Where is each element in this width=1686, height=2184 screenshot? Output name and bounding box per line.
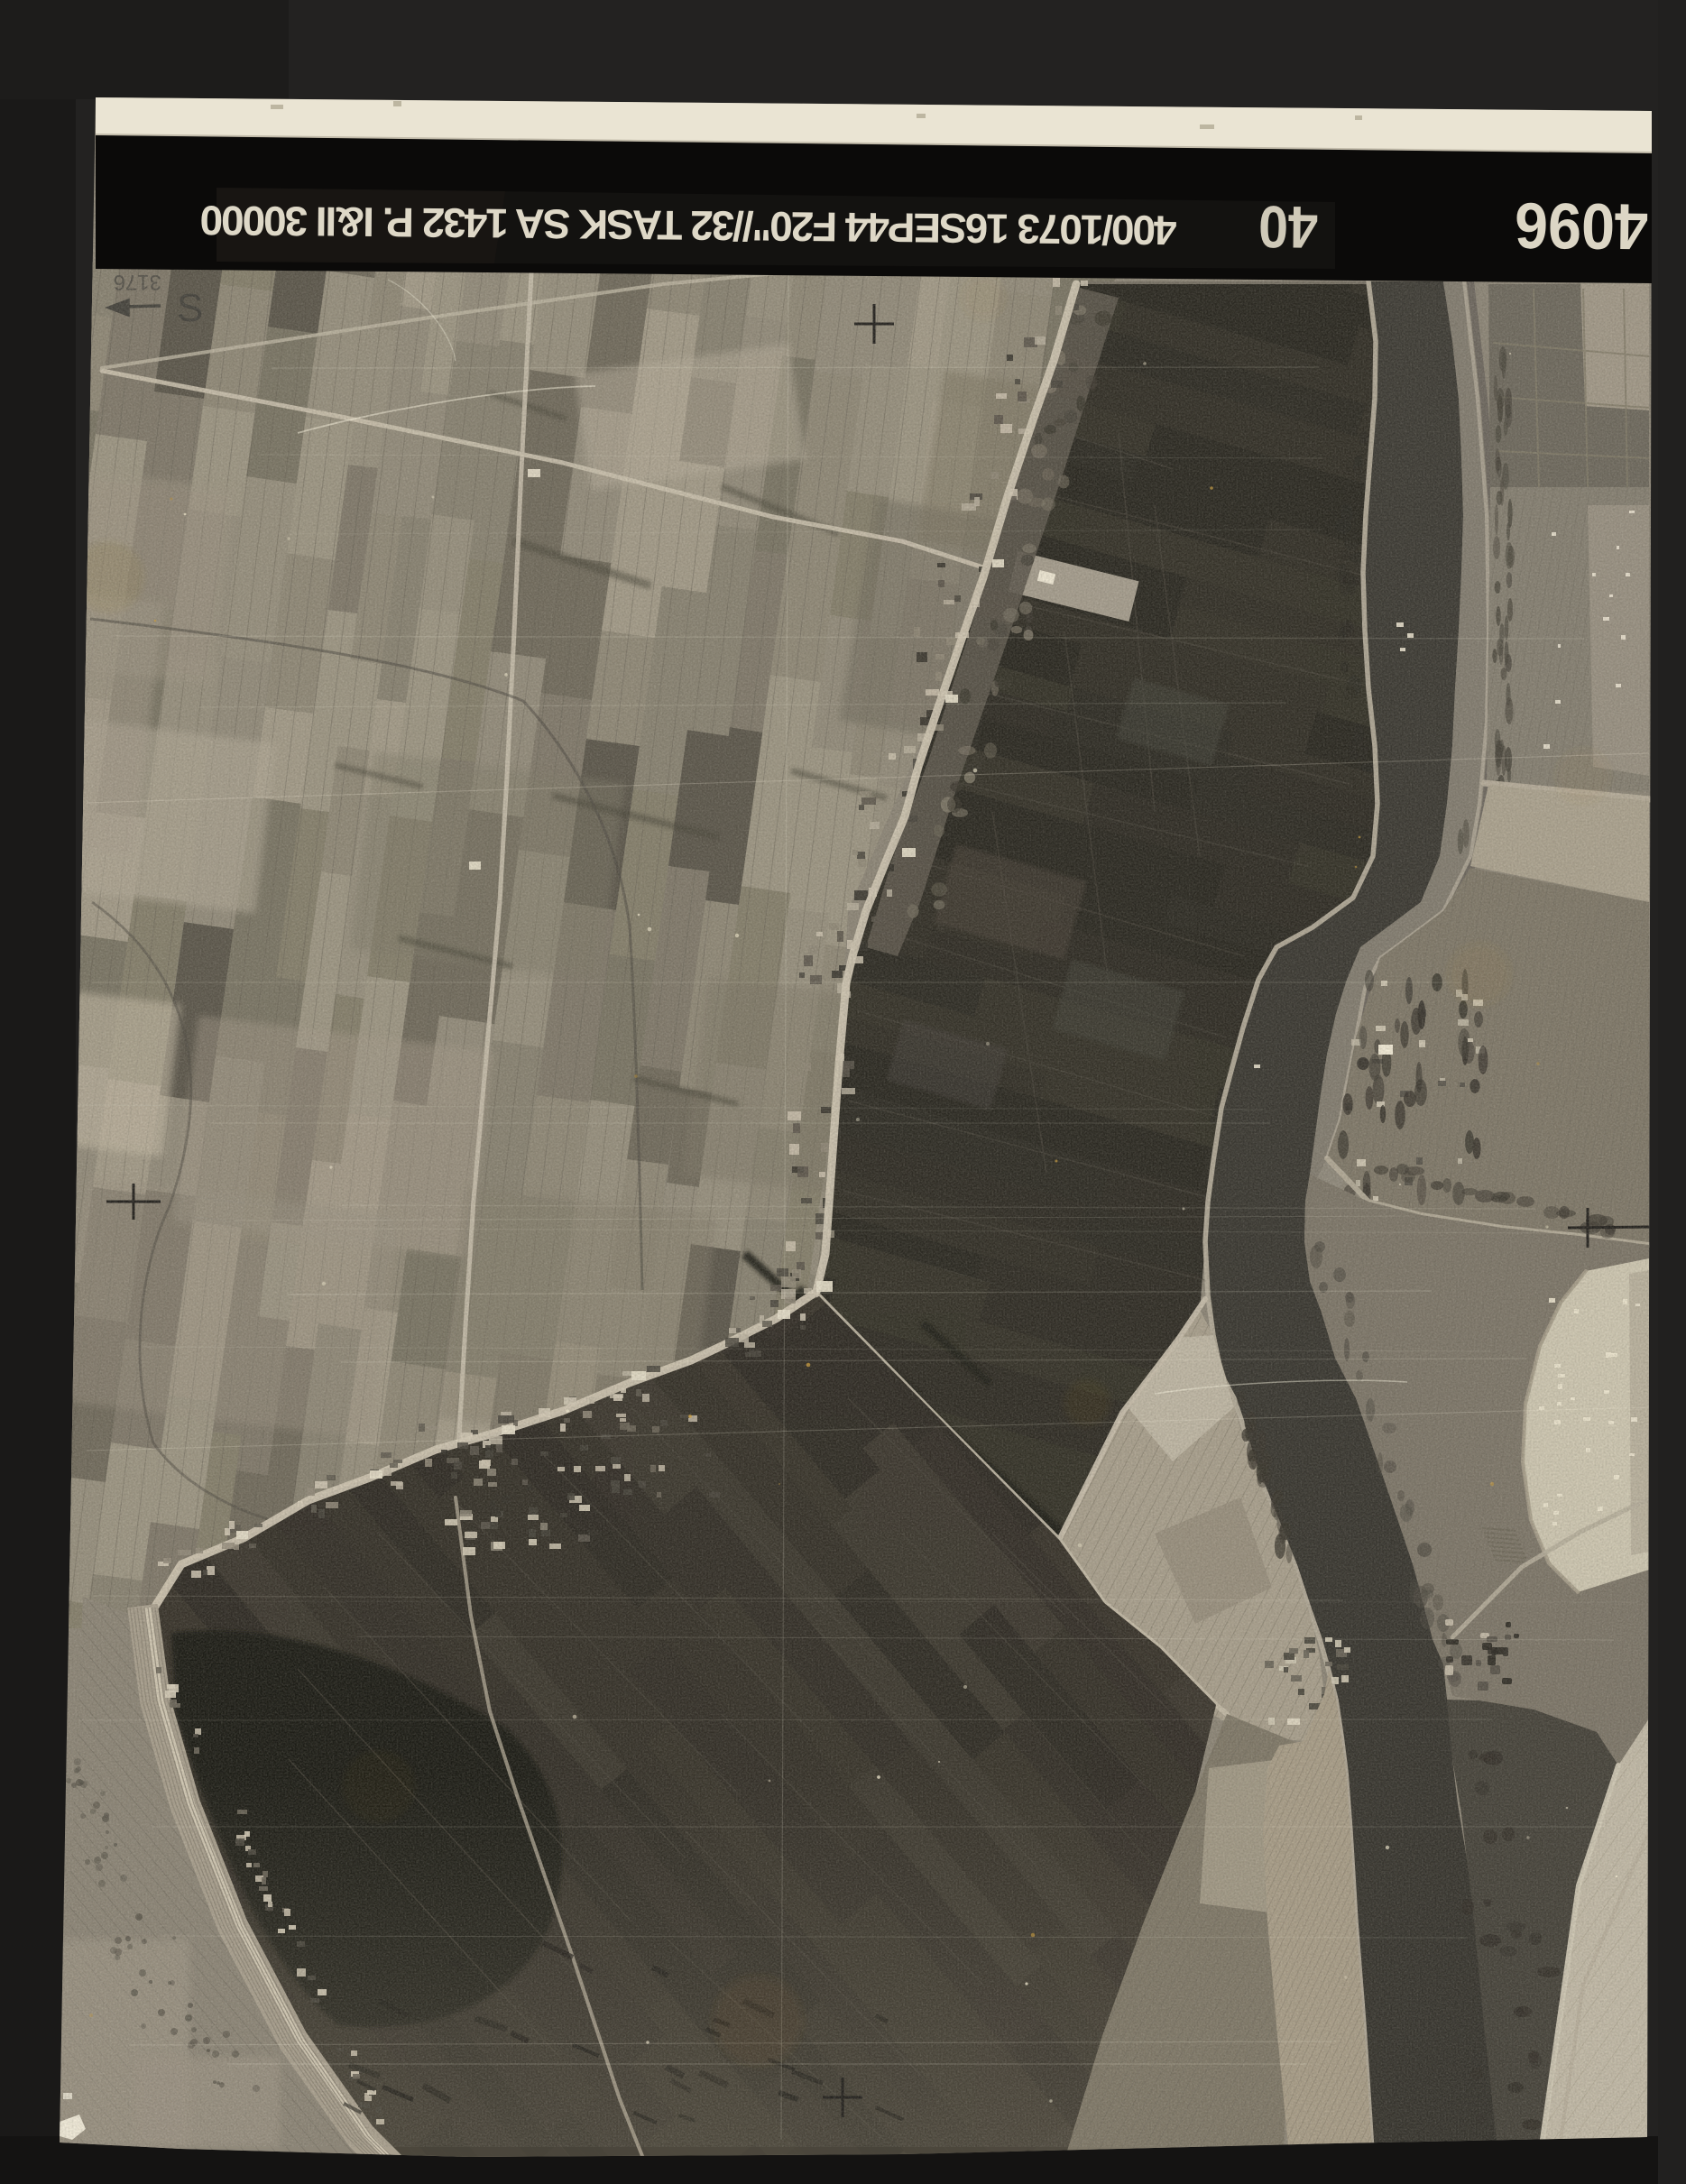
- svg-text:40: 40: [1258, 194, 1319, 262]
- svg-text:4096: 4096: [1515, 189, 1649, 263]
